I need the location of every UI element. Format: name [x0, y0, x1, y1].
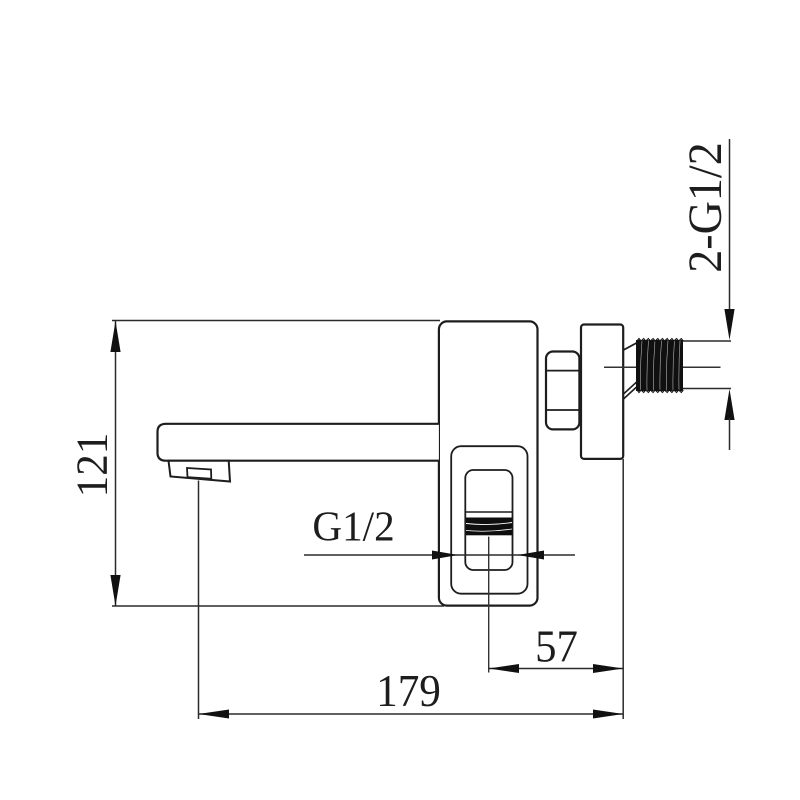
svg-text:57: 57: [535, 620, 578, 672]
svg-text:179: 179: [376, 665, 441, 717]
svg-text:2-G1/2: 2-G1/2: [679, 142, 732, 273]
svg-text:121: 121: [68, 433, 116, 498]
svg-text:G1/2: G1/2: [312, 503, 394, 549]
